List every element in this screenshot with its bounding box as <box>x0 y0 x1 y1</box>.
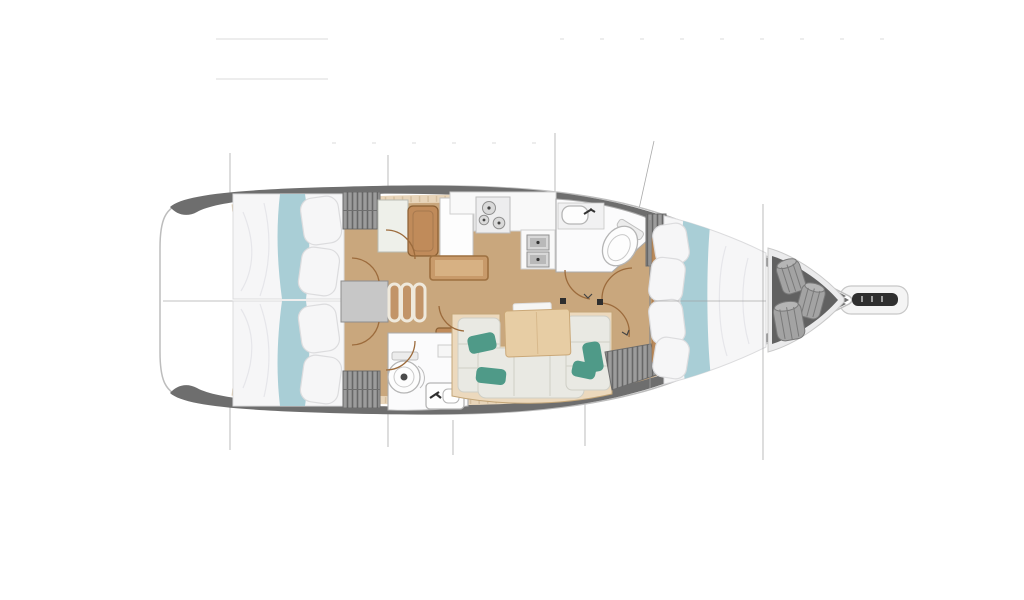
pillow <box>297 303 341 355</box>
yacht-deck-plan <box>0 0 1024 600</box>
pillow <box>299 354 343 406</box>
companionway-steps <box>341 281 425 322</box>
stove-icon <box>476 197 510 233</box>
wardrobe-starboard <box>343 371 380 408</box>
sail-locker <box>768 248 844 352</box>
salon-table <box>504 302 571 357</box>
pillow <box>647 256 686 304</box>
salon-settee <box>452 302 612 403</box>
teal-pillow <box>475 366 507 385</box>
aft-cabin-starboard <box>233 301 344 406</box>
deck-plan-canvas <box>0 0 1024 600</box>
wardrobe-port <box>343 192 380 229</box>
aft-cabin-port <box>233 194 344 299</box>
pillow <box>299 195 343 247</box>
sink-icon <box>562 206 588 224</box>
forward-cabin <box>647 212 766 390</box>
pillow <box>297 246 341 298</box>
door-stop <box>597 299 603 305</box>
faint-guide-marks <box>216 39 884 143</box>
door-stop <box>560 298 566 304</box>
anchor-roller <box>852 293 898 306</box>
double-sink-icon <box>521 230 555 269</box>
pillow <box>651 336 691 381</box>
